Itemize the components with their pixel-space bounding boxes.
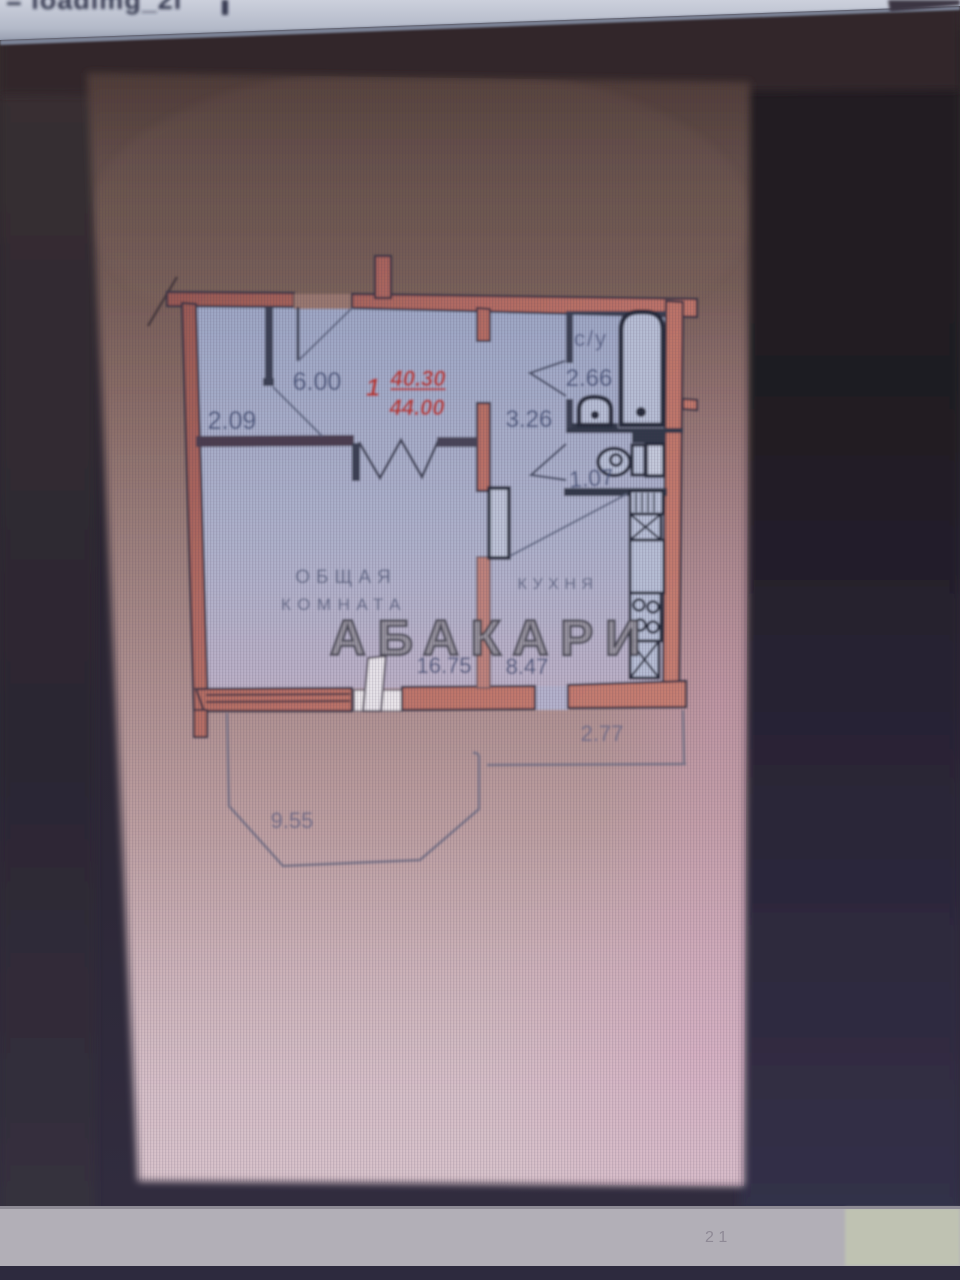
svg-text:2 1: 2 1 [705,1229,727,1246]
svg-text:= loadimg_2i: = loadimg_2i [6,0,182,15]
